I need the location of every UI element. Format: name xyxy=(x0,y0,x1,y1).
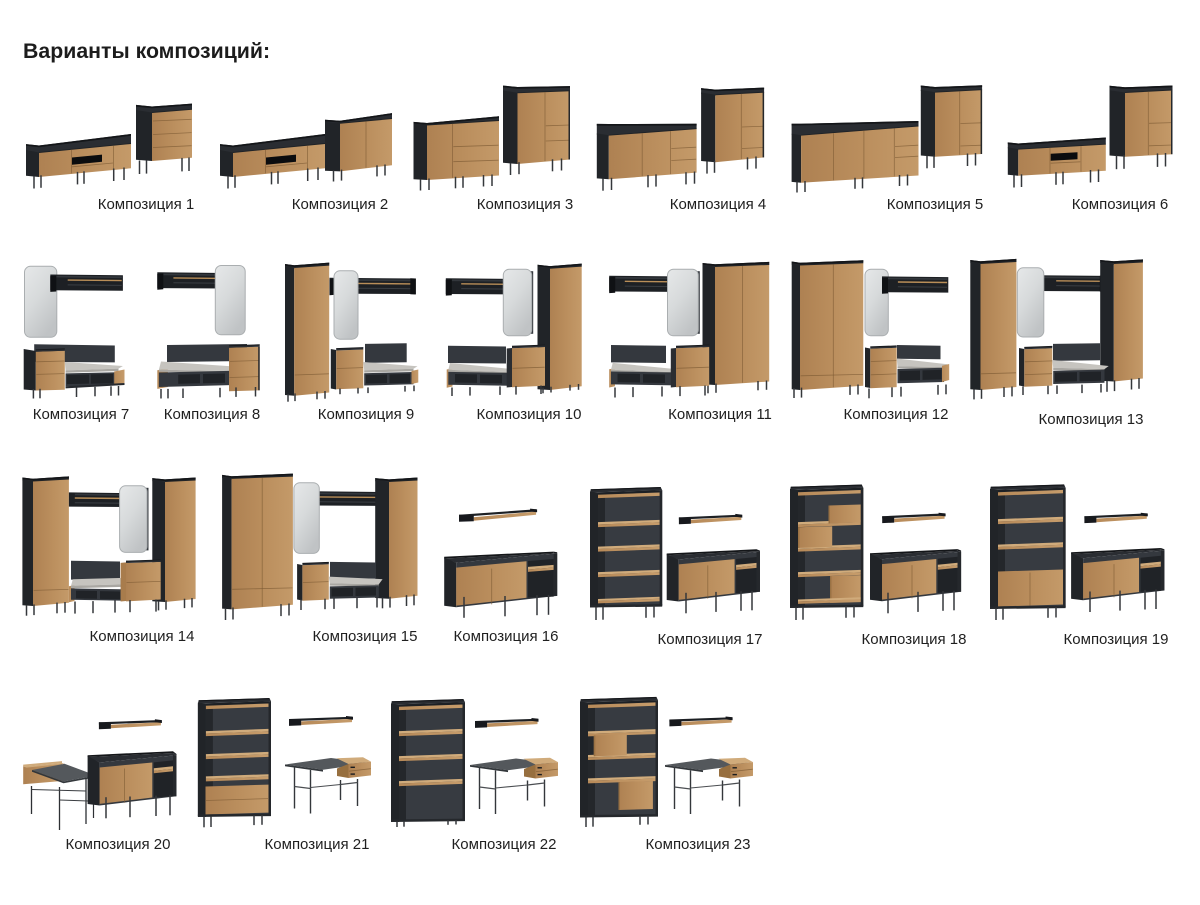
svg-text:Композиция 3: Композиция 3 xyxy=(477,196,574,213)
svg-text:Композиция 21: Композиция 21 xyxy=(265,836,370,853)
svg-text:Композиция 10: Композиция 10 xyxy=(477,406,582,423)
svg-text:Композиция 7: Композиция 7 xyxy=(33,406,130,423)
svg-text:Композиция 17: Композиция 17 xyxy=(658,631,763,648)
svg-text:Композиция 11: Композиция 11 xyxy=(668,406,772,423)
svg-text:Композиция 18: Композиция 18 xyxy=(862,631,967,648)
svg-text:Композиция 5: Композиция 5 xyxy=(887,196,984,213)
svg-text:Композиция 1: Композиция 1 xyxy=(98,196,195,213)
svg-text:Композиция 19: Композиция 19 xyxy=(1064,631,1169,648)
svg-text:Композиция 20: Композиция 20 xyxy=(66,836,171,853)
svg-text:Композиция 15: Композиция 15 xyxy=(313,628,418,645)
svg-text:Композиция 8: Композиция 8 xyxy=(164,406,261,423)
svg-text:Композиция 22: Композиция 22 xyxy=(452,836,557,853)
svg-text:Композиция 16: Композиция 16 xyxy=(454,628,559,645)
svg-text:Композиция 2: Композиция 2 xyxy=(292,196,389,213)
svg-text:Композиция 4: Композиция 4 xyxy=(670,196,767,213)
svg-text:Композиция 9: Композиция 9 xyxy=(318,406,415,423)
svg-text:Композиция 13: Композиция 13 xyxy=(1039,411,1144,428)
svg-text:Композиция 12: Композиция 12 xyxy=(844,406,949,423)
svg-text:Композиция 23: Композиция 23 xyxy=(646,836,751,853)
svg-text:Композиция 6: Композиция 6 xyxy=(1072,196,1169,213)
svg-text:Композиция 14: Композиция 14 xyxy=(90,628,195,645)
svg-text:Варианты композиций:: Варианты композиций: xyxy=(23,39,270,63)
